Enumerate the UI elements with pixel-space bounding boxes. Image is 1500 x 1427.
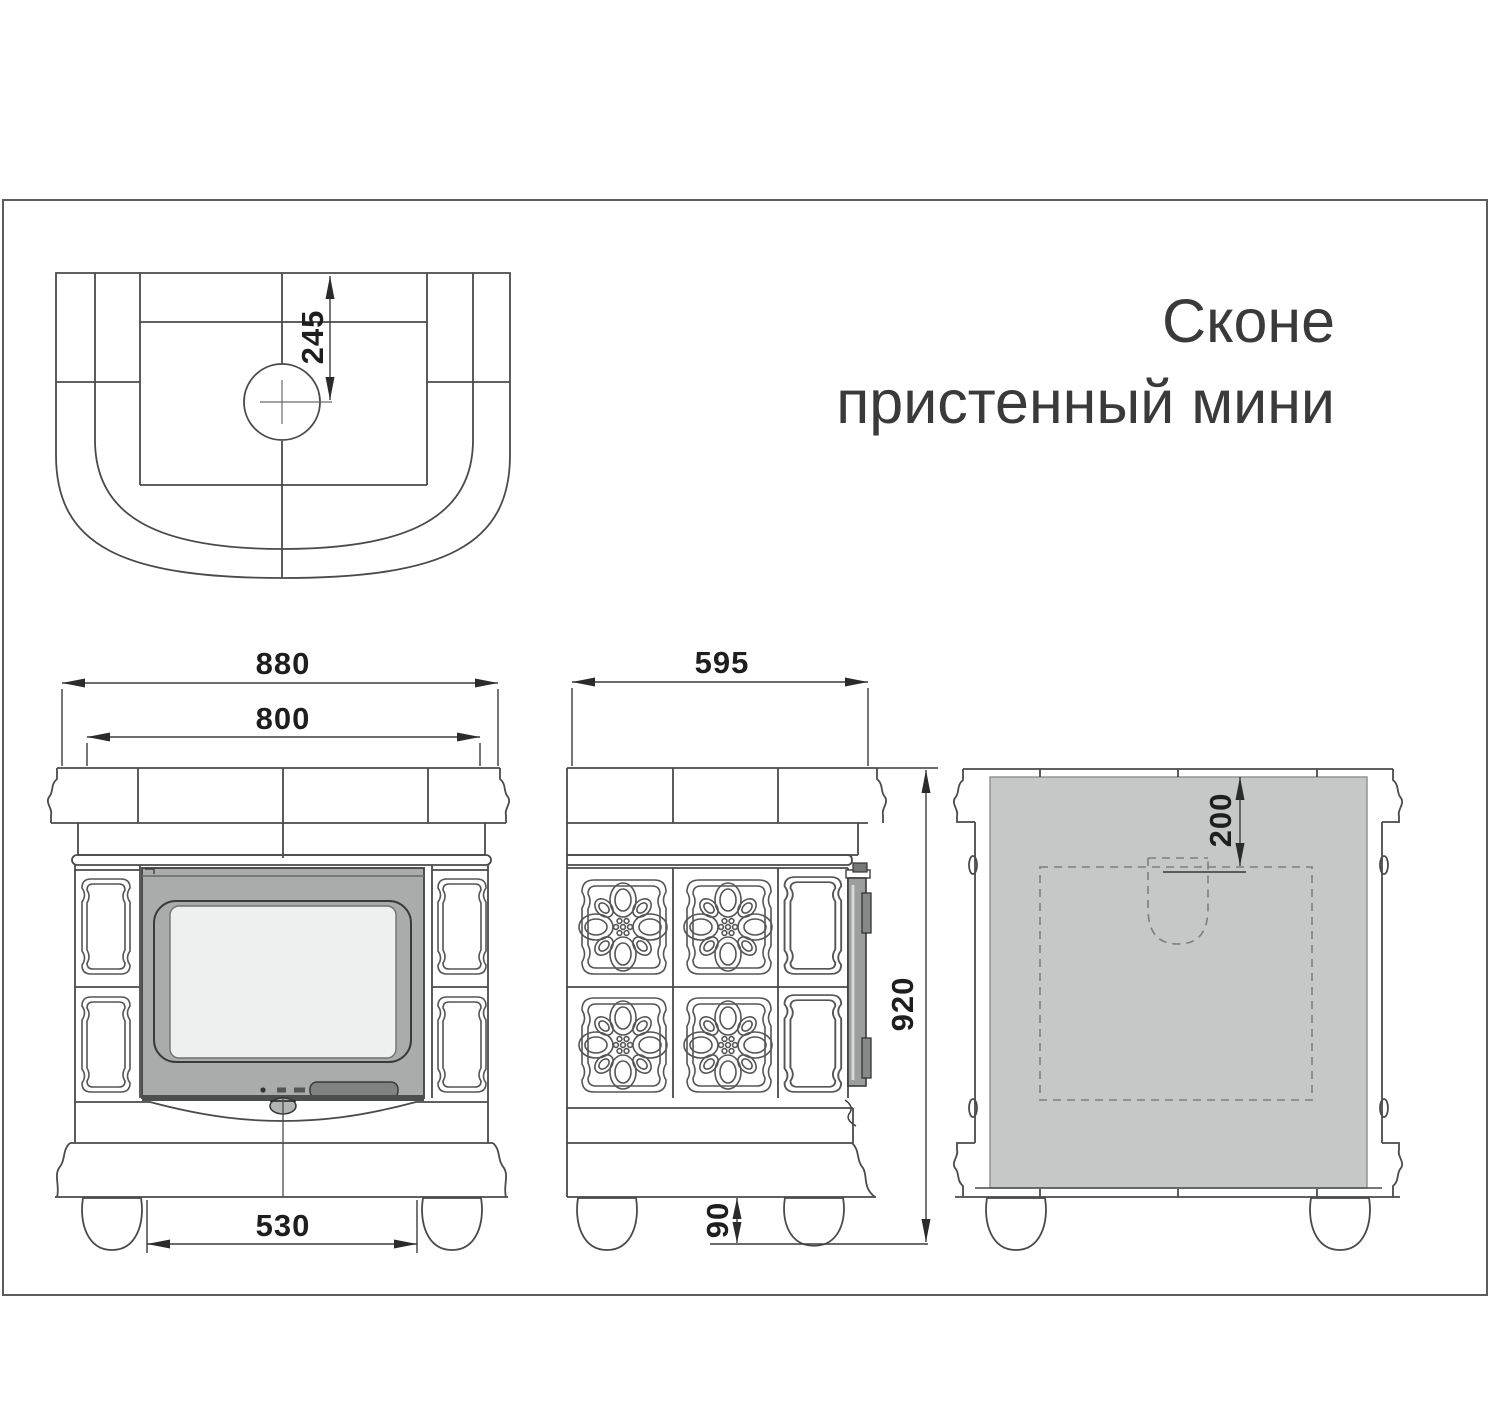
dim-label-200: 200 bbox=[1203, 793, 1239, 848]
dim-label-530: 530 bbox=[256, 1208, 311, 1244]
side-right-foot bbox=[784, 1198, 844, 1246]
top-view bbox=[56, 273, 510, 578]
back-panel bbox=[990, 777, 1367, 1188]
door-glass bbox=[170, 906, 396, 1058]
title-line-1: Сконе bbox=[820, 281, 1335, 362]
back-view bbox=[954, 769, 1402, 1250]
dim-595 bbox=[572, 682, 868, 766]
dim-label-880: 880 bbox=[256, 646, 311, 682]
door-edge-strip bbox=[845, 863, 871, 1126]
front-view bbox=[48, 679, 509, 1254]
drawing-title: Сконе пристенный мини bbox=[820, 281, 1335, 443]
drawing-sheet: Сконе пристенный мини 245 880 800 530 59… bbox=[0, 0, 1500, 1427]
back-left-foot bbox=[986, 1198, 1046, 1250]
side-left-foot bbox=[577, 1198, 637, 1250]
dim-label-800: 800 bbox=[256, 701, 311, 737]
title-line-2: пристенный мини bbox=[820, 362, 1335, 443]
side-view bbox=[567, 678, 938, 1251]
back-right-foot bbox=[1310, 1198, 1370, 1250]
front-right-foot bbox=[422, 1198, 482, 1250]
dim-800 bbox=[87, 737, 480, 766]
dim-label-90: 90 bbox=[700, 1202, 736, 1238]
fireplace-door bbox=[142, 868, 424, 1101]
dim-label-595: 595 bbox=[695, 645, 750, 681]
dim-label-245: 245 bbox=[295, 310, 331, 365]
stove-technical-drawing bbox=[0, 0, 1500, 1427]
front-left-foot bbox=[82, 1198, 142, 1250]
dim-label-920: 920 bbox=[885, 977, 921, 1032]
